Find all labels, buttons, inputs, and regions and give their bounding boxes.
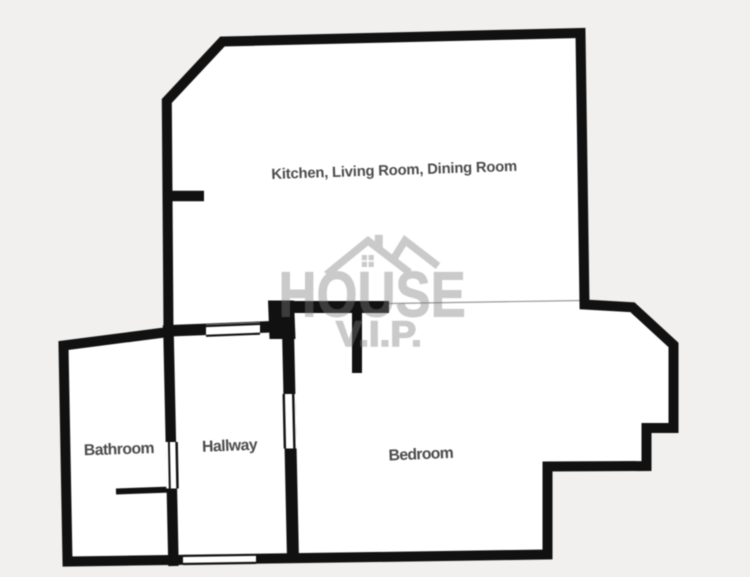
svg-text:V.I.P.: V.I.P. [336, 315, 422, 354]
svg-text:Bedroom: Bedroom [388, 445, 454, 465]
svg-text:Hallway: Hallway [202, 437, 258, 456]
svg-text:Bathroom: Bathroom [84, 440, 155, 459]
